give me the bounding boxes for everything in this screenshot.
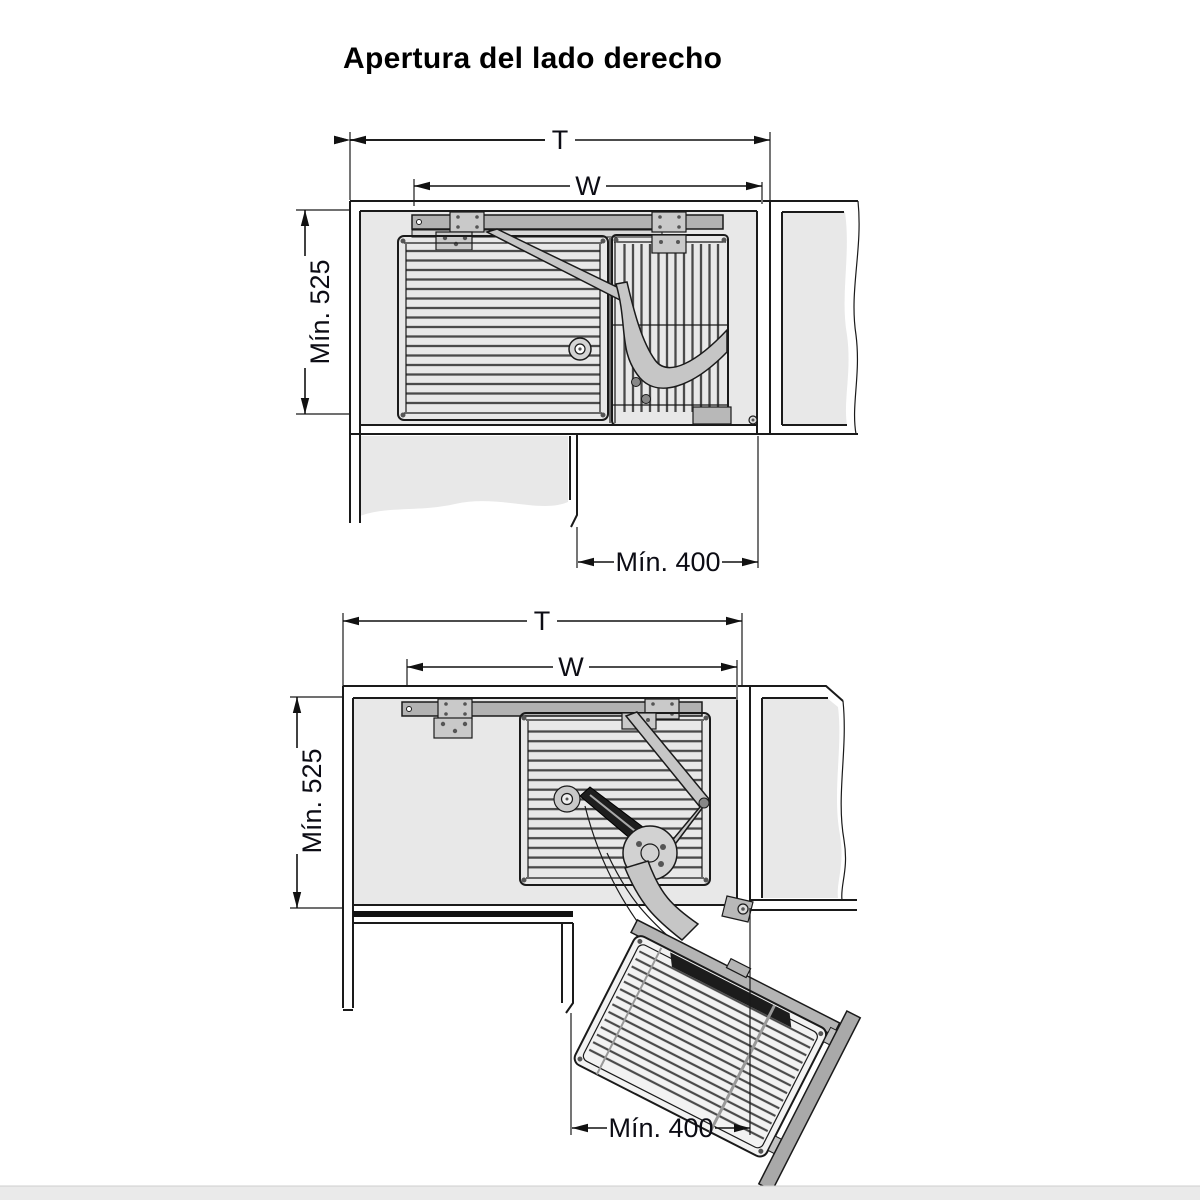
dim-label-min-depth: Mín. 525: [297, 748, 327, 853]
lower-cabinet: [360, 436, 568, 516]
break-edge: [854, 201, 859, 434]
technical-drawing: T W Mín. 525 Mín. 400: [0, 0, 1200, 1200]
break-edge: [841, 701, 845, 900]
storage-basket-main: [520, 713, 710, 885]
basket-foot: [693, 407, 731, 424]
diagram-closed-position: T W Mín. 525 Mín. 400: [296, 125, 859, 577]
page-edge-strip: [0, 1186, 1200, 1200]
dim-label-min-opening: Mín. 400: [608, 1113, 713, 1143]
document-page: Apertura del lado derecho: [0, 0, 1200, 1200]
dim-label-min-depth: Mín. 525: [305, 259, 335, 364]
mount-plate: [436, 232, 472, 250]
plinth-edge: [353, 911, 573, 917]
diagram-open-position: T W Mín. 525 Mín. 400: [290, 606, 860, 1191]
storage-basket-left: [398, 236, 608, 420]
rail-bracket: [450, 212, 484, 232]
rail-bracket: [652, 212, 686, 232]
dim-label-total-width: T: [534, 606, 551, 636]
adjacent-unit: [782, 212, 849, 425]
rail-bracket: [438, 699, 472, 719]
adjacent-unit: [762, 698, 842, 898]
swung-basket: [556, 907, 861, 1190]
dim-label-min-opening: Mín. 400: [615, 547, 720, 577]
dim-label-runner-width: W: [558, 652, 584, 682]
dim-label-total-width: T: [552, 125, 569, 155]
mount-plate: [434, 718, 472, 738]
dim-label-runner-width: W: [575, 171, 601, 201]
